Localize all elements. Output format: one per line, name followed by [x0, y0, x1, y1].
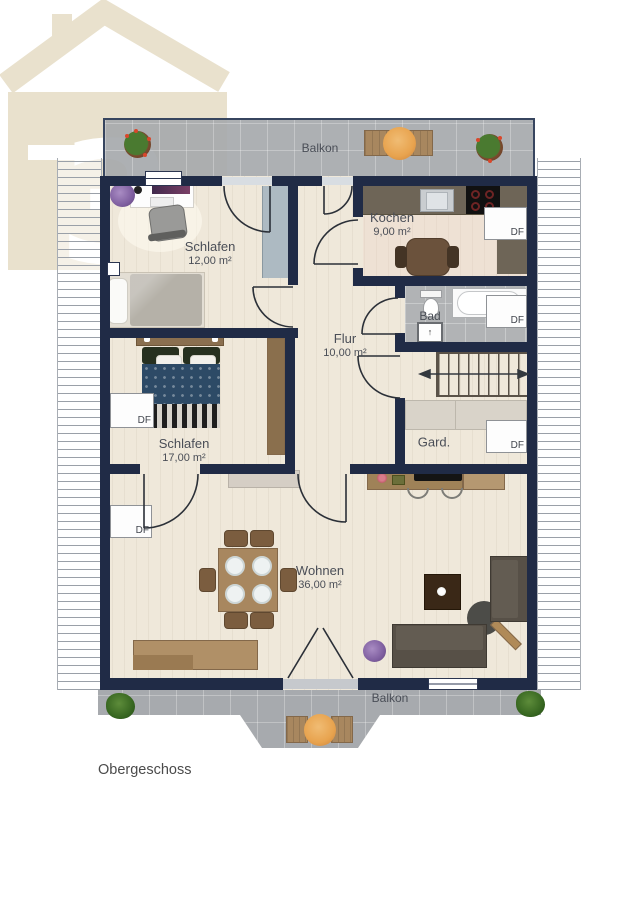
room-name: Schlafen: [185, 239, 236, 254]
balcony-plant-right-icon: [516, 691, 545, 717]
wall-bath-stairs: [395, 342, 537, 352]
desk-book: [392, 475, 405, 485]
roof-window-bath: DF: [486, 295, 527, 328]
desk-items: [152, 186, 190, 194]
dining-chair-bottom-1: [224, 612, 248, 629]
roof-window-label: DF: [511, 440, 524, 451]
wall-top-3: [272, 176, 322, 186]
wall-bottom-3: [478, 678, 537, 690]
toilet-tank: [420, 290, 442, 298]
sofa-right-seat: [492, 560, 518, 618]
burner-3: [471, 202, 480, 211]
wall-bedroom12-right: [288, 186, 298, 285]
wall-bedrooms-divider: [100, 328, 298, 338]
shower: ↑: [417, 322, 443, 343]
roof-window-kitchen: DF: [484, 207, 527, 240]
room-area: 36,00 m²: [296, 579, 344, 591]
sofa-bottom-seat: [396, 626, 483, 650]
flower-pot-right-icon: [476, 134, 503, 161]
wall-living-top-3: [350, 464, 537, 474]
room-area: 10,00 m²: [323, 347, 366, 359]
room-name: Wohnen: [296, 563, 344, 578]
plant-living-icon: [363, 640, 386, 662]
wall-kitchen-left-a: [353, 186, 363, 217]
door-threshold-top-1: [222, 177, 272, 185]
room-label-schlafen12: Schlafen 12,00 m²: [185, 239, 236, 267]
floorplan-page: 3 Balkon: [0, 0, 637, 900]
built-in-cabinet: [262, 186, 289, 278]
roof-window-label: DF: [136, 525, 149, 536]
dining-table: [218, 548, 278, 612]
staircase: [436, 352, 527, 397]
garderobe-closet-divider: [455, 400, 456, 430]
room-name: Gard.: [418, 435, 451, 450]
dining-chair-top-2: [250, 530, 274, 547]
wall-bottom-2: [358, 678, 428, 690]
balcony-bottom-label: Balkon: [372, 691, 409, 705]
burner-1: [471, 190, 480, 199]
plate-1: [225, 556, 245, 576]
dining-chair-left: [199, 568, 216, 592]
wall-bottom-1: [100, 678, 283, 690]
sideboard-top: [133, 655, 193, 670]
room-label-flur: Flur 10,00 m²: [323, 331, 366, 359]
room-label-kochen: Kochen 9,00 m²: [370, 210, 414, 238]
room-label-bad: Bad: [419, 309, 440, 323]
window-bedroom12-left: [107, 262, 120, 276]
kitchen-table: [406, 238, 450, 276]
single-bed-pillow: [108, 278, 128, 324]
window-living-bottom: [428, 678, 478, 690]
dining-chair-top-1: [224, 530, 248, 547]
balcony-table-icon: [304, 714, 336, 746]
balcony-plant-left-icon: [106, 693, 135, 719]
wall-bedroom17-right: [285, 338, 295, 465]
plate-2: [252, 556, 272, 576]
room-name: Kochen: [370, 210, 414, 225]
wall-right: [527, 176, 537, 690]
roof-window-living: DF: [110, 505, 152, 538]
dining-chair-right: [280, 568, 297, 592]
plant-bedroom-icon: [110, 183, 135, 207]
kitchen-chair-left: [395, 246, 407, 268]
plate-4: [252, 584, 272, 604]
plate-3: [225, 584, 245, 604]
room-label-wohnen: Wohnen 36,00 m²: [296, 563, 344, 591]
roof-slope-right: [537, 158, 581, 690]
room-label-schlafen17: Schlafen 17,00 m²: [159, 436, 210, 464]
wall-top-2: [182, 176, 222, 186]
floor-caption: Obergeschoss: [98, 762, 192, 778]
wall-left: [100, 176, 110, 690]
parasol-icon: [383, 127, 416, 160]
door-threshold-top-2: [322, 177, 353, 185]
roof-window-label: DF: [511, 315, 524, 326]
kitchen-chair-right: [447, 246, 459, 268]
window-bedroom12-top: [145, 171, 182, 186]
kitchen-sink-basin: [426, 192, 448, 210]
roof-slope-left: [57, 158, 102, 690]
burner-2: [485, 190, 494, 199]
roof-window-label: DF: [511, 227, 524, 238]
wall-top-4: [353, 176, 537, 186]
wall-kitchen-left-b: [353, 268, 363, 276]
wall-bath-left-a: [395, 286, 405, 298]
room-name: Bad: [419, 309, 440, 323]
roof-window-garderobe: DF: [486, 420, 527, 453]
balcony-door-threshold: [283, 679, 358, 689]
wall-flur-right: [395, 398, 405, 464]
desk-lamp-dot: [134, 186, 142, 194]
roof-window-label: DF: [138, 415, 151, 426]
wall-kitchen-bottom: [353, 276, 537, 286]
coffee-table-flower: [437, 587, 446, 596]
desk-flower: [377, 473, 387, 483]
flower-pot-left-icon: [124, 131, 151, 158]
room-label-garderobe: Gard.: [418, 435, 451, 450]
room-name: Schlafen: [159, 436, 210, 451]
wall-living-top-2: [200, 464, 295, 474]
room-area: 9,00 m²: [370, 226, 414, 238]
balcony-top-label: Balkon: [302, 141, 339, 155]
dining-chair-bottom-2: [250, 612, 274, 629]
room-area: 17,00 m²: [159, 452, 210, 464]
single-bed-blanket: [130, 274, 202, 326]
room-area: 12,00 m²: [185, 255, 236, 267]
wall-living-top-1: [100, 464, 140, 474]
room-name: Flur: [334, 331, 356, 346]
roof-window-bedroom17: DF: [110, 393, 154, 428]
bedroom-wardrobe: [267, 338, 285, 455]
